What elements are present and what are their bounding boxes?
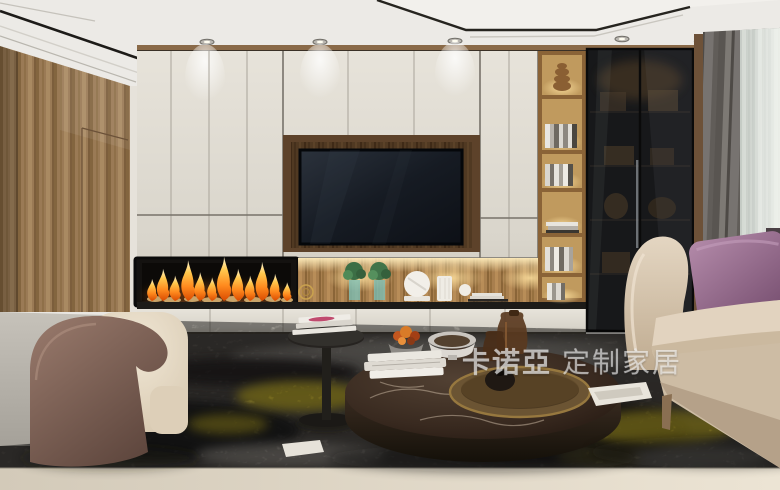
bronze-tray [450,367,590,417]
console-countertop [137,302,586,309]
white-sphere-vase [404,271,430,301]
bowl-contents [434,335,470,347]
interior-render: 卡诺亞定制家居 [0,0,780,490]
bookshelf-tower [538,51,586,304]
armchair-seat-side [150,386,188,434]
render-canvas [0,0,780,490]
white-textured-vase [437,276,452,301]
tv-niche [283,135,480,252]
stone-floor-front [0,468,780,490]
wood-wall-edge-shadow [0,46,18,312]
downlight-cone-2 [300,44,340,108]
downlight-cone-1 [185,44,225,112]
door-handle [636,160,638,248]
table-books [364,350,447,379]
downlight-cone-3 [435,42,475,106]
wood-panel-wall [0,46,138,312]
side-table-stem [322,344,331,420]
fireplace [135,257,298,308]
stacked-books [546,222,579,233]
